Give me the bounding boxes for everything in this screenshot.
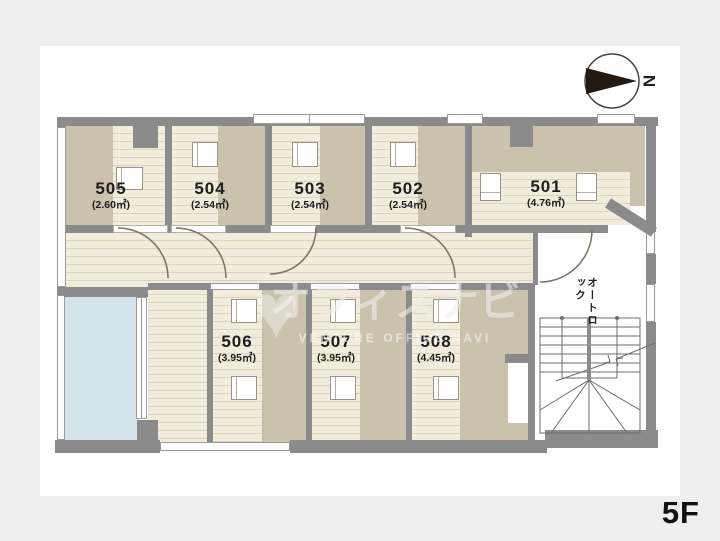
- room-area: (2.54㎡): [260, 200, 360, 211]
- auto-lock-label: オートロック: [574, 277, 598, 337]
- stair-break-line: [556, 343, 655, 381]
- desk-icon: [390, 142, 416, 167]
- window-balcony-right: [136, 297, 147, 419]
- sliding-door-508: [410, 283, 460, 290]
- entry-wall: [533, 228, 538, 285]
- corridor: [66, 233, 533, 287]
- room-505-label: 505 (2.60㎡): [61, 180, 161, 211]
- balcony-pillar: [137, 420, 158, 442]
- room-502-label: 502 (2.54㎡): [358, 180, 458, 211]
- window-top-long: [253, 114, 365, 124]
- stair-break-arrows: [603, 355, 623, 366]
- desk-icon: [292, 142, 318, 167]
- window-top-3: [597, 114, 635, 124]
- room-506-label: 506 (3.95㎡): [187, 333, 287, 364]
- room-area: (2.60㎡): [61, 200, 161, 211]
- door-arc-entrance: [540, 230, 592, 282]
- corridor-lower-wall-d: [460, 283, 535, 290]
- room-number: 504: [160, 180, 260, 198]
- room-area: (3.95㎡): [187, 353, 287, 364]
- outer-wall-right-bottom: [646, 322, 656, 434]
- room-501-label: 501 (4.76㎡): [496, 178, 596, 209]
- balcony-top-wall: [57, 287, 148, 297]
- window-divider: [309, 115, 310, 123]
- shaft-wall: [505, 354, 535, 363]
- outer-wall-bottom-mid: [290, 440, 547, 453]
- desk-icon: [330, 376, 356, 400]
- sliding-door-507: [310, 283, 360, 290]
- window-top-2: [447, 114, 483, 124]
- desk-icon: [433, 376, 459, 400]
- room-area: (2.54㎡): [160, 200, 260, 211]
- room-area: (3.95㎡): [286, 353, 386, 364]
- wall-502-501: [465, 126, 472, 237]
- room-number: 508: [386, 333, 486, 351]
- outer-wall-bottom-left: [55, 440, 160, 453]
- window-right-1: [646, 232, 655, 254]
- compass-icon: N: [585, 54, 659, 108]
- room-507-label: 507 (3.95㎡): [286, 333, 386, 364]
- desk-icon: [433, 299, 459, 323]
- wall-506-507: [306, 288, 312, 443]
- window-bottom: [160, 442, 290, 451]
- floor-number-label: 5F: [630, 495, 700, 531]
- stair-post: [560, 316, 564, 320]
- corridor-wall-c: [316, 225, 365, 233]
- room-508-label: 508 (4.45㎡): [386, 333, 486, 364]
- desk-icon: [231, 299, 257, 323]
- floorplan-card: N 501 (4.76㎡) 502 (2.54㎡) 503 (2.54㎡) 50…: [40, 46, 680, 496]
- desk-icon: [192, 142, 218, 167]
- door-opening-502: [400, 225, 456, 233]
- room-507-tatami: [360, 290, 406, 443]
- corridor-lower-wall-b: [260, 283, 310, 290]
- room-number: 501: [496, 178, 596, 196]
- pillar-505: [133, 126, 158, 148]
- corridor-wall-b: [226, 225, 270, 233]
- sliding-door-506: [210, 283, 260, 290]
- stair-post: [615, 316, 619, 320]
- room-area: (2.54㎡): [358, 200, 458, 211]
- room-503-label: 503 (2.54㎡): [260, 180, 360, 211]
- door-opening-503: [270, 225, 316, 233]
- outer-wall-topleft-corner: [57, 117, 66, 127]
- outer-wall-bottom-stair: [545, 430, 658, 448]
- corridor-lower-wall-c: [360, 283, 410, 290]
- wall-508-stair: [528, 283, 535, 443]
- outer-wall-right-top: [646, 126, 656, 232]
- outer-wall-right-mid: [646, 254, 656, 284]
- corridor-lower-wall-a: [148, 283, 210, 290]
- room-504-label: 504 (2.54㎡): [160, 180, 260, 211]
- wall-corridor-506: [207, 288, 213, 443]
- window-balcony-left: [57, 295, 65, 440]
- room-number: 506: [187, 333, 287, 351]
- stair-fan-lines: [540, 380, 640, 433]
- compass-north-letter: N: [640, 75, 659, 87]
- room-area: (4.76㎡): [496, 198, 596, 209]
- room-number: 507: [286, 333, 386, 351]
- door-opening-504: [171, 225, 226, 233]
- corridor-wall-a: [66, 225, 113, 233]
- window-right-2: [646, 284, 655, 322]
- corridor-wall-d: [372, 225, 400, 233]
- room-506-tatami: [262, 290, 306, 443]
- desk-icon: [330, 299, 356, 323]
- balcony-area: [63, 295, 139, 443]
- room-number: 502: [358, 180, 458, 198]
- room-area: (4.45㎡): [386, 353, 486, 364]
- room-number: 505: [61, 180, 161, 198]
- desk-icon: [231, 376, 257, 400]
- room-501-tatami: [472, 126, 645, 172]
- pillar-501: [510, 126, 533, 147]
- wall-507-508: [406, 288, 412, 443]
- room-number: 503: [260, 180, 360, 198]
- door-opening-505: [113, 225, 168, 233]
- corridor-wall-e: [456, 225, 608, 233]
- window-divider: [141, 298, 142, 418]
